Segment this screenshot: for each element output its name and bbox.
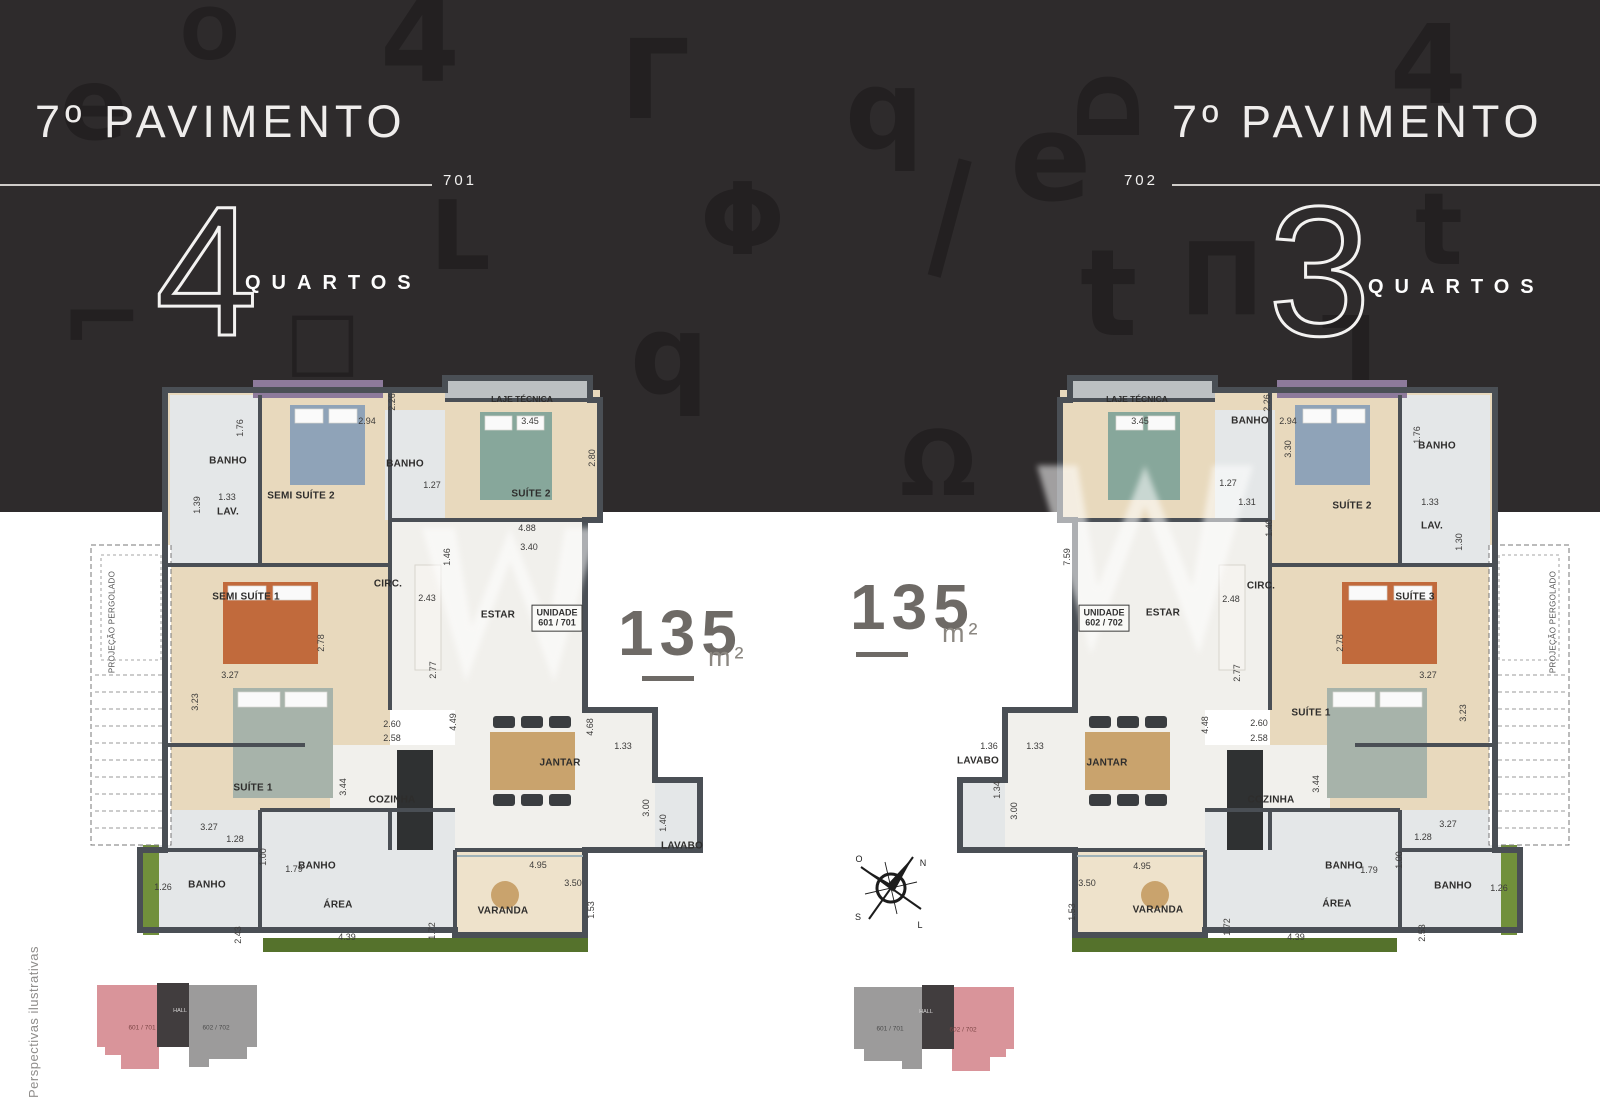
compass-rose-icon: O N S L <box>846 843 936 933</box>
area-unit-701: m² <box>708 642 747 673</box>
keyplan-unit-label: 602 / 702 <box>949 1027 976 1034</box>
decor-glyph: q <box>845 55 924 165</box>
decor-glyph: | <box>915 146 988 273</box>
decor-glyph: O <box>180 0 240 70</box>
decor-glyph: □ <box>285 300 361 380</box>
svg-text:N: N <box>920 858 927 868</box>
floorplan-701 <box>85 370 710 955</box>
keyplan-701: 601 / 701 HALL 602 / 702 <box>97 983 259 1075</box>
decor-glyph: 4 <box>380 0 460 100</box>
page: 4OeΓqeΦLt⌐qΩ4tΠD|□L 7º PAVIMENTO 701 4 Q… <box>0 0 1600 1120</box>
decor-glyph: Π <box>1180 230 1264 330</box>
decor-glyph: D <box>1068 72 1153 143</box>
divider-rule-702 <box>1172 184 1600 186</box>
bedrooms-label-702: QUARTOS <box>1368 276 1545 299</box>
svg-text:S: S <box>855 912 861 922</box>
floor-title-702: 7º PAVIMENTO <box>1172 96 1544 148</box>
keyplan-702: 601 / 701 HALL 602 / 702 <box>852 985 1014 1077</box>
bedrooms-count-701: 4 <box>155 200 258 344</box>
keyplan-hall-label: HALL <box>173 1008 187 1014</box>
side-caption: Perspectivas ilustrativas <box>26 946 41 1098</box>
area-dash <box>642 676 694 681</box>
unit-number-702: 702 <box>1098 172 1158 189</box>
decor-glyph: Φ <box>700 170 785 270</box>
svg-text:L: L <box>917 920 922 930</box>
unit-number-701: 701 <box>443 172 477 189</box>
decor-glyph: L <box>430 190 491 285</box>
floorplan-702 <box>950 370 1575 955</box>
decor-glyph: Γ <box>620 25 690 135</box>
keyplan-unit-label: 601 / 701 <box>128 1025 155 1032</box>
decor-glyph: t <box>1080 235 1137 355</box>
floor-title-701: 7º PAVIMENTO <box>35 96 407 148</box>
keyplan-unit-label: 601 / 701 <box>876 1026 903 1033</box>
svg-text:O: O <box>855 854 862 864</box>
area-dash <box>856 652 908 657</box>
area-unit-702: m² <box>942 618 981 649</box>
keyplan-unit-label: 602 / 702 <box>202 1025 229 1032</box>
keyplan-hall-label: HALL <box>919 1009 933 1015</box>
decor-glyph: t <box>1415 180 1463 280</box>
bedrooms-count-702: 3 <box>1268 200 1371 344</box>
decor-glyph: ⌐ <box>60 270 144 370</box>
bedrooms-label-701: QUARTOS <box>245 272 422 295</box>
